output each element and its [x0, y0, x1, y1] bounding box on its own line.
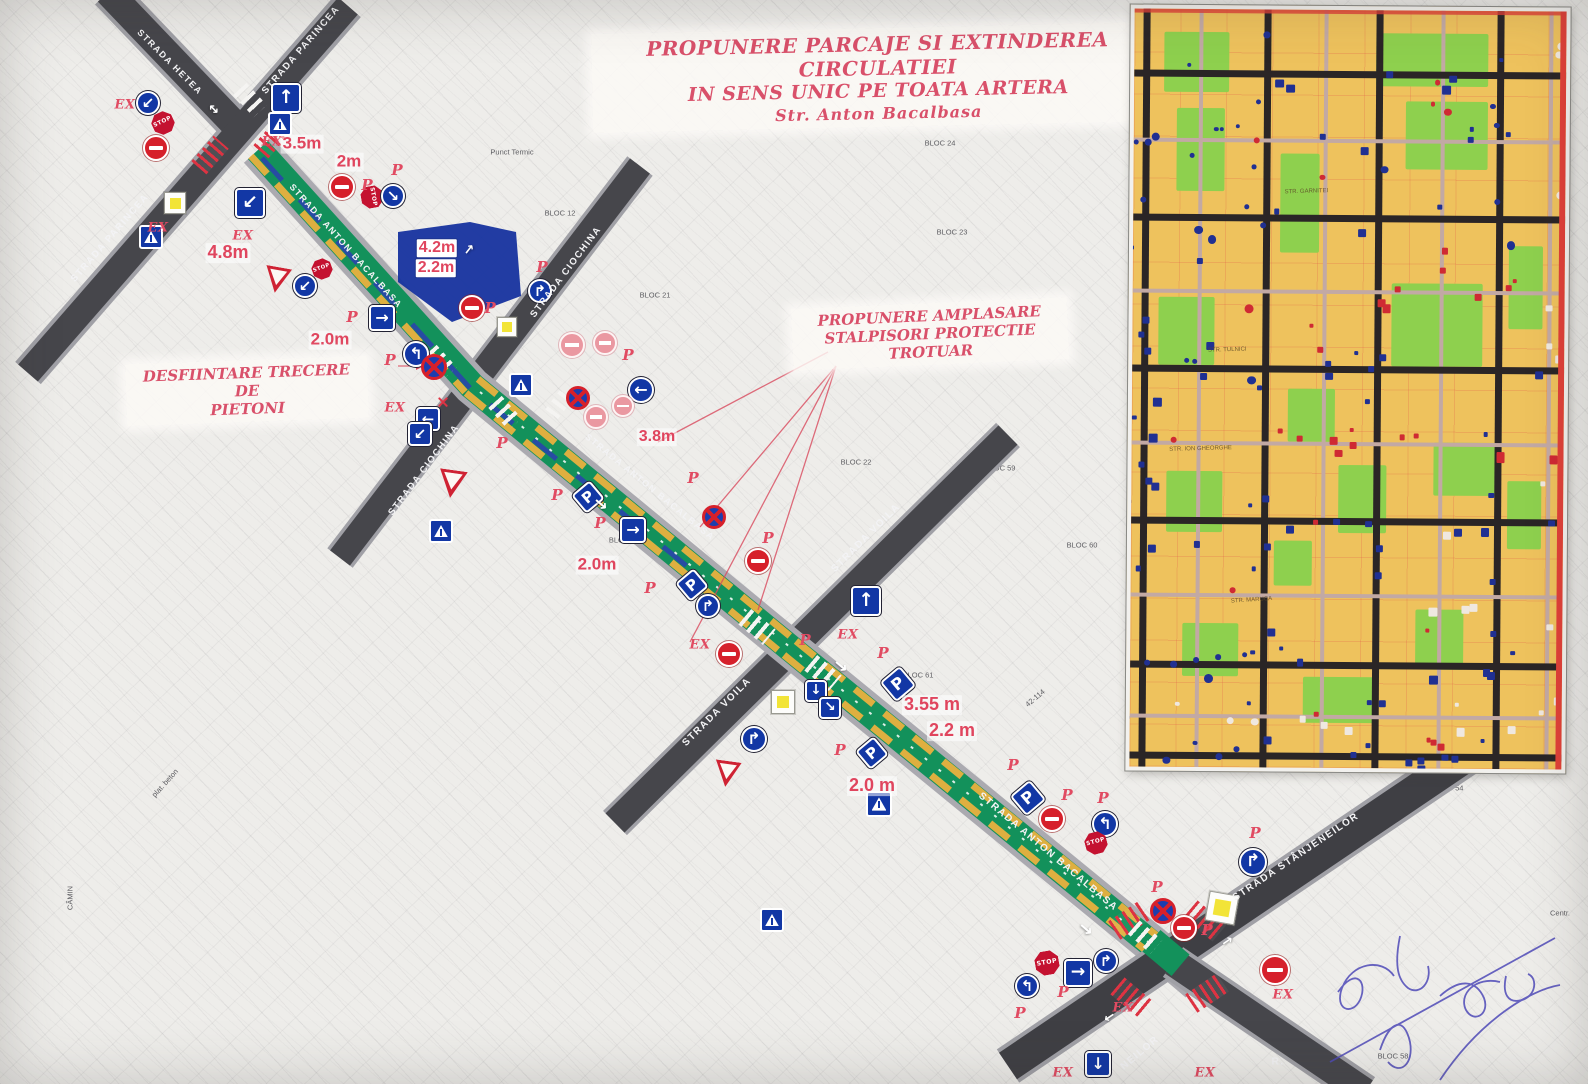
- no-entry-sign-faded: [559, 332, 585, 358]
- parking-mark: P: [1061, 786, 1072, 804]
- inset-mini-sign: [1507, 241, 1516, 250]
- inset-mini-sign: [1267, 628, 1275, 636]
- inset-mini-sign: [1497, 454, 1505, 462]
- inset-mini-sign: [1215, 654, 1220, 659]
- inset-mini-sign: [1379, 354, 1386, 361]
- arrow-sign: ↙: [408, 422, 432, 446]
- parking-mark: P: [391, 161, 402, 179]
- inset-mini-sign: [1510, 651, 1514, 655]
- inset-mini-sign: [1365, 743, 1370, 748]
- inset-mini-sign: [1350, 428, 1354, 432]
- yield-sign: [262, 265, 292, 295]
- inset-mini-sign: [1512, 279, 1516, 283]
- inset-mini-sign: [1387, 71, 1394, 78]
- arrow-sign-round: ↙: [293, 274, 317, 298]
- parking-mark: P: [687, 469, 698, 487]
- priority-road-sign: [164, 192, 186, 214]
- inset-mini-sign: [1251, 566, 1256, 571]
- inset-green-area: [1164, 31, 1229, 92]
- no-entry-sign: [745, 548, 771, 574]
- no-stopping-sign: [421, 354, 447, 380]
- street-name-label: STRADA PARINCEA: [260, 4, 343, 97]
- arrow-sign: →: [620, 517, 646, 543]
- inset-mini-sign: [1540, 481, 1545, 486]
- inset-mini-sign: [1264, 737, 1271, 744]
- no-entry-sign: [459, 295, 485, 321]
- street-name-label: R.: [1272, 1057, 1285, 1068]
- inset-mini-sign: [1395, 286, 1401, 292]
- inset-mini-sign: [1494, 199, 1500, 205]
- inset-mini-sign: [1144, 347, 1151, 354]
- inset-mini-sign: [1350, 442, 1357, 449]
- inset-mini-sign: [1494, 123, 1500, 129]
- inset-mini-sign: [1491, 631, 1497, 637]
- parking-mark: P: [536, 258, 547, 276]
- inset-green-area: [1434, 443, 1499, 496]
- inset-mini-sign: [1257, 385, 1263, 391]
- note-remove-crossing: DESFIINTARE TRECERE DE PIETONI: [125, 356, 369, 426]
- inset-mini-sign: [1490, 104, 1495, 109]
- no-stopping-sign: [566, 386, 590, 410]
- crosswalk-sign: [509, 373, 533, 397]
- crosswalk-sign: [760, 908, 784, 932]
- inset-mini-sign: [1256, 99, 1261, 104]
- inset-mini-sign: [1135, 566, 1141, 572]
- inset-mini-sign: [1248, 504, 1252, 508]
- parking-mark: P: [877, 644, 888, 662]
- inset-mini-sign: [1326, 373, 1334, 381]
- parking-mark: P: [1097, 789, 1108, 807]
- no-entry-sign: [1171, 915, 1197, 941]
- inset-mini-sign: [1317, 347, 1323, 353]
- inset-mini-sign: [1489, 493, 1494, 498]
- inset-mini-sign: [1455, 702, 1459, 706]
- no-entry-sign: [1039, 806, 1065, 832]
- inset-mini-sign: [1481, 528, 1489, 536]
- inset-mini-sign: [1299, 716, 1306, 723]
- inset-mini-sign: [1367, 700, 1373, 706]
- inset-mini-sign: [1454, 529, 1462, 537]
- inset-mini-sign: [1546, 343, 1552, 349]
- inset-mini-sign: [1313, 520, 1318, 525]
- parking-mark: P: [496, 434, 507, 452]
- inset-mini-sign: [1444, 108, 1451, 115]
- inset-mini-sign: [1138, 461, 1144, 467]
- inset-mini-sign: [1320, 174, 1326, 180]
- inset-mini-sign: [1128, 499, 1132, 503]
- inset-mini-sign: [1429, 607, 1438, 616]
- arrow-sign-round: ↱: [1094, 949, 1118, 973]
- inset-mini-sign: [1474, 294, 1481, 301]
- inset-mini-sign: [1329, 437, 1337, 445]
- inset-mini-sign: [1144, 659, 1150, 665]
- inset-mini-sign: [1470, 127, 1474, 131]
- inset-mini-sign: [1149, 434, 1157, 442]
- inset-mini-sign: [1451, 756, 1458, 763]
- inset-mini-sign: [1399, 435, 1404, 440]
- inset-mini-sign: [1170, 661, 1177, 668]
- no-entry-sign: [329, 174, 355, 200]
- inset-street-label: STR. GARNITEI: [1284, 188, 1328, 195]
- priority-road-sign: [497, 317, 517, 337]
- inset-mini-sign: [1344, 727, 1353, 736]
- inset-mini-sign: [1333, 518, 1340, 525]
- inset-mini-sign: [1490, 579, 1496, 585]
- parking-mark: P: [1201, 921, 1212, 939]
- parking-mark: P: [1057, 983, 1068, 1001]
- inset-mini-sign: [1171, 437, 1177, 443]
- plan-title: PROPUNERE PARCAJE SI EXTINDEREA CIRCULAT…: [591, 22, 1165, 133]
- inset-mini-sign: [1193, 541, 1199, 547]
- street-name-label: STRADA HETEA: [135, 27, 204, 96]
- inset-mini-sign: [1506, 285, 1511, 290]
- note-bollards-proposal: PROPUNERE AMPLASARE STALPISORI PROTECTIE…: [791, 297, 1069, 371]
- inset-mini-sign: [1443, 532, 1451, 540]
- no-entry-sign-faded: [584, 405, 608, 429]
- inset-mini-sign: [1535, 372, 1542, 379]
- inset-mini-sign: [1461, 606, 1469, 614]
- inset-mini-sign: [1368, 366, 1374, 372]
- inset-mini-sign: [1358, 229, 1367, 238]
- inset-mini-sign: [1274, 209, 1280, 215]
- inset-mini-sign: [1456, 728, 1465, 737]
- inset-mini-sign: [1244, 204, 1249, 209]
- parking-mark: P: [1249, 824, 1260, 842]
- existing-sign-mark: EX: [690, 638, 711, 653]
- no-entry-sign: [716, 641, 742, 667]
- inset-street-label: STR. TULNICI: [1208, 347, 1247, 354]
- inset-mini-sign: [1382, 304, 1391, 313]
- priority-road-sign: [771, 690, 795, 714]
- inset-mini-sign: [1314, 712, 1319, 717]
- arrow-sign: ↙: [235, 188, 265, 218]
- arrow-sign-round: ↱: [741, 726, 767, 752]
- street-name-label: NEILOR: [1119, 1034, 1162, 1072]
- inset-mini-sign: [1297, 659, 1303, 665]
- parking-mark: P: [644, 579, 655, 597]
- measurement-label: 4.2m: [417, 239, 457, 257]
- inset-mini-sign: [1200, 373, 1207, 380]
- inset-mini-sign: [1431, 740, 1436, 745]
- inset-mini-sign: [1413, 433, 1418, 438]
- inset-mini-sign: [1153, 397, 1162, 406]
- arrow-sign-round: ↘: [381, 184, 405, 208]
- measurement-label: 2.0 m: [847, 776, 897, 796]
- inset-mini-sign: [1163, 756, 1170, 763]
- measurement-label: 3.5m: [281, 135, 324, 154]
- inset-mini-sign: [1506, 132, 1511, 137]
- inset-mini-sign: [1417, 765, 1426, 773]
- inset-mini-sign: [1264, 32, 1271, 39]
- existing-sign-mark: EX: [148, 221, 169, 236]
- existing-sign-mark: EX: [1273, 988, 1294, 1003]
- inset-mini-sign: [1233, 746, 1239, 752]
- stop-sign: STOP: [1033, 949, 1061, 977]
- inset-mini-sign: [1193, 657, 1199, 663]
- yield-sign: [712, 759, 741, 788]
- parking-mark: P: [622, 346, 633, 364]
- parking-mark: P: [346, 308, 357, 326]
- inset-mini-sign: [1405, 759, 1413, 767]
- measurement-label: 2.2m: [416, 259, 456, 277]
- inset-mini-sign: [1548, 520, 1555, 527]
- inset-mini-sign: [1449, 76, 1456, 83]
- existing-sign-mark: EX: [1113, 1001, 1134, 1016]
- inset-mini-sign: [1247, 701, 1251, 705]
- inset-mini-sign: [1499, 58, 1503, 62]
- direction-arrow: ↔: [203, 100, 223, 120]
- existing-sign-mark: EX: [385, 401, 406, 416]
- inset-mini-sign: [1132, 415, 1137, 420]
- parking-mark: P: [594, 514, 605, 532]
- inset-mini-sign: [1230, 587, 1236, 593]
- existing-sign-mark: EX: [838, 628, 859, 643]
- parking-mark: P: [799, 631, 810, 649]
- inset-mini-sign: [1142, 317, 1149, 324]
- inset-mini-sign: [1175, 701, 1179, 705]
- parking-mark: P: [762, 529, 773, 547]
- inset-mini-sign: [1350, 752, 1356, 758]
- inset-green-area: [1507, 481, 1542, 549]
- inset-mini-sign: [1437, 205, 1442, 210]
- inset-mini-sign: [1151, 482, 1160, 491]
- inset-mini-sign: [1481, 739, 1485, 743]
- direction-arrow: →: [1072, 917, 1097, 942]
- inset-mini-sign: [1546, 624, 1553, 631]
- street-plan-photo: Punct TermicBLOC 12BLOC 24BLOC 23BLOC 21…: [0, 0, 1588, 1084]
- inset-mini-sign: [1426, 738, 1431, 743]
- parking-sign: P: [855, 736, 889, 770]
- inset-mini-sign: [1365, 400, 1370, 405]
- measurement-label: 2.2 m: [927, 721, 977, 741]
- direction-arrow: →: [1218, 932, 1237, 951]
- inset-mini-sign: [1360, 147, 1368, 155]
- crosswalk-sign: [429, 519, 453, 543]
- arrow-sign: ↓: [1085, 1051, 1111, 1077]
- arrow-sign-round: ↙: [136, 91, 160, 115]
- existing-sign-mark: EX: [1053, 1066, 1074, 1081]
- inset-green-area: [1287, 389, 1335, 442]
- inset-mini-sign: [1442, 85, 1451, 94]
- crosswalk-sign: [268, 112, 292, 136]
- inset-mini-sign: [1442, 754, 1449, 761]
- inset-mini-sign: [1378, 700, 1386, 708]
- inset-mini-sign: [1190, 153, 1195, 158]
- inset-mini-sign: [1278, 429, 1282, 433]
- inset-mini-sign: [1429, 675, 1438, 684]
- inset-mini-sign: [1381, 166, 1389, 174]
- arrow-sign: ↘: [819, 697, 841, 719]
- parking-mark: P: [834, 741, 845, 759]
- inset-mini-sign: [1425, 629, 1429, 633]
- inset-green-area: [1376, 33, 1489, 87]
- arrow-sign-round: ↰: [1015, 974, 1039, 998]
- inset-mini-sign: [1126, 715, 1130, 719]
- inset-mini-sign: [1417, 758, 1424, 765]
- no-entry-sign-faded: [593, 331, 617, 355]
- inset-mini-sign: [1252, 165, 1256, 169]
- direction-arrow: →: [827, 654, 852, 679]
- inset-mini-sign: [1194, 226, 1203, 235]
- inset-green-area: [1158, 297, 1215, 366]
- inset-mini-sign: [1439, 267, 1446, 274]
- inset-mini-sign: [1438, 744, 1445, 751]
- existing-sign-mark: EX: [262, 135, 283, 150]
- inset-green-area: [1273, 540, 1312, 586]
- inset-mini-sign: [1286, 526, 1294, 534]
- inset-mini-sign: [1487, 672, 1495, 680]
- yield-sign: [436, 468, 468, 500]
- parking-mark: P: [551, 486, 562, 504]
- inset-green-area: [1280, 154, 1320, 253]
- arrow-sign: →: [369, 305, 395, 331]
- inset-mini-sign: [1279, 646, 1283, 650]
- inset-street-label: STR. ION GHEORGHE: [1169, 445, 1232, 453]
- inset-mini-sign: [1483, 432, 1487, 436]
- direction-arrow: →: [460, 240, 480, 260]
- inset-mini-sign: [1244, 305, 1253, 314]
- inset-mini-sign: [1538, 710, 1543, 715]
- inset-mini-sign: [1375, 572, 1382, 579]
- measurement-label: 2m: [335, 153, 364, 172]
- inset-mini-sign: [1226, 717, 1233, 724]
- inset-green-area: [1508, 246, 1543, 330]
- inset-mini-sign: [1468, 137, 1474, 143]
- inset-mini-sign: [1286, 84, 1295, 93]
- measurement-label: 3.55 m: [902, 695, 962, 715]
- inset-mini-sign: [1264, 543, 1271, 550]
- inset-mini-sign: [1216, 753, 1223, 760]
- inset-mini-sign: [1276, 80, 1284, 88]
- arrow-sign-round: ↱: [696, 594, 720, 618]
- parking-mark: P: [1007, 756, 1018, 774]
- inset-mini-sign: [1320, 722, 1328, 730]
- inset-mini-sign: [1435, 80, 1440, 85]
- inset-mini-sign: [1442, 248, 1449, 255]
- measurement-label: 4.8m: [205, 243, 250, 263]
- arrow-sign: ↑: [851, 586, 881, 616]
- no-entry-sign: [1260, 955, 1290, 985]
- inset-mini-sign: [1129, 245, 1133, 249]
- inset-mini-sign: [1263, 496, 1270, 503]
- parking-mark: P: [1014, 1004, 1025, 1022]
- no-entry-sign: [143, 135, 169, 161]
- inset-mini-sign: [1251, 719, 1258, 726]
- measurement-label: 2.0m: [576, 556, 619, 575]
- inset-mini-sign: [1247, 376, 1255, 384]
- inset-mini-sign: [1297, 436, 1303, 442]
- existing-sign-mark: EX: [1195, 1066, 1216, 1081]
- inset-mini-sign: [1507, 726, 1515, 734]
- inset-overview-map: STR. GARNITEISTR. TULNICISTR. ION GHEORG…: [1125, 4, 1570, 773]
- inset-mini-sign: [1134, 139, 1139, 144]
- parking-mark: P: [361, 176, 372, 194]
- existing-sign-mark: EX: [115, 98, 136, 113]
- inset-mini-sign: [1192, 741, 1197, 746]
- inset-mini-sign: [1365, 521, 1372, 528]
- parking-mark: P: [1151, 878, 1162, 896]
- inset-mini-sign: [1138, 332, 1144, 338]
- inset-mini-sign: [1144, 138, 1151, 145]
- inset-mini-sign: [1546, 306, 1552, 312]
- inset-mini-sign: [1325, 361, 1331, 367]
- inset-mini-sign: [1148, 545, 1156, 553]
- inset-mini-sign: [1197, 258, 1203, 264]
- inset-mini-sign: [1335, 450, 1343, 458]
- inset-green-area: [1182, 623, 1239, 676]
- parking-mark: P: [484, 299, 495, 317]
- street-name-label: STRADA VOILA: [829, 501, 902, 574]
- measurement-label: 3.8m: [637, 428, 677, 446]
- inset-mini-sign: [1470, 604, 1478, 612]
- no-entry-sign-faded: [612, 395, 634, 417]
- measurement-label: 2.0m: [309, 331, 352, 350]
- inset-mini-sign: [1251, 650, 1256, 655]
- parking-mark: P: [384, 351, 395, 369]
- inset-green-area: [1391, 283, 1482, 367]
- inset-mini-sign: [1376, 545, 1383, 552]
- inset-mini-sign: [1320, 134, 1326, 140]
